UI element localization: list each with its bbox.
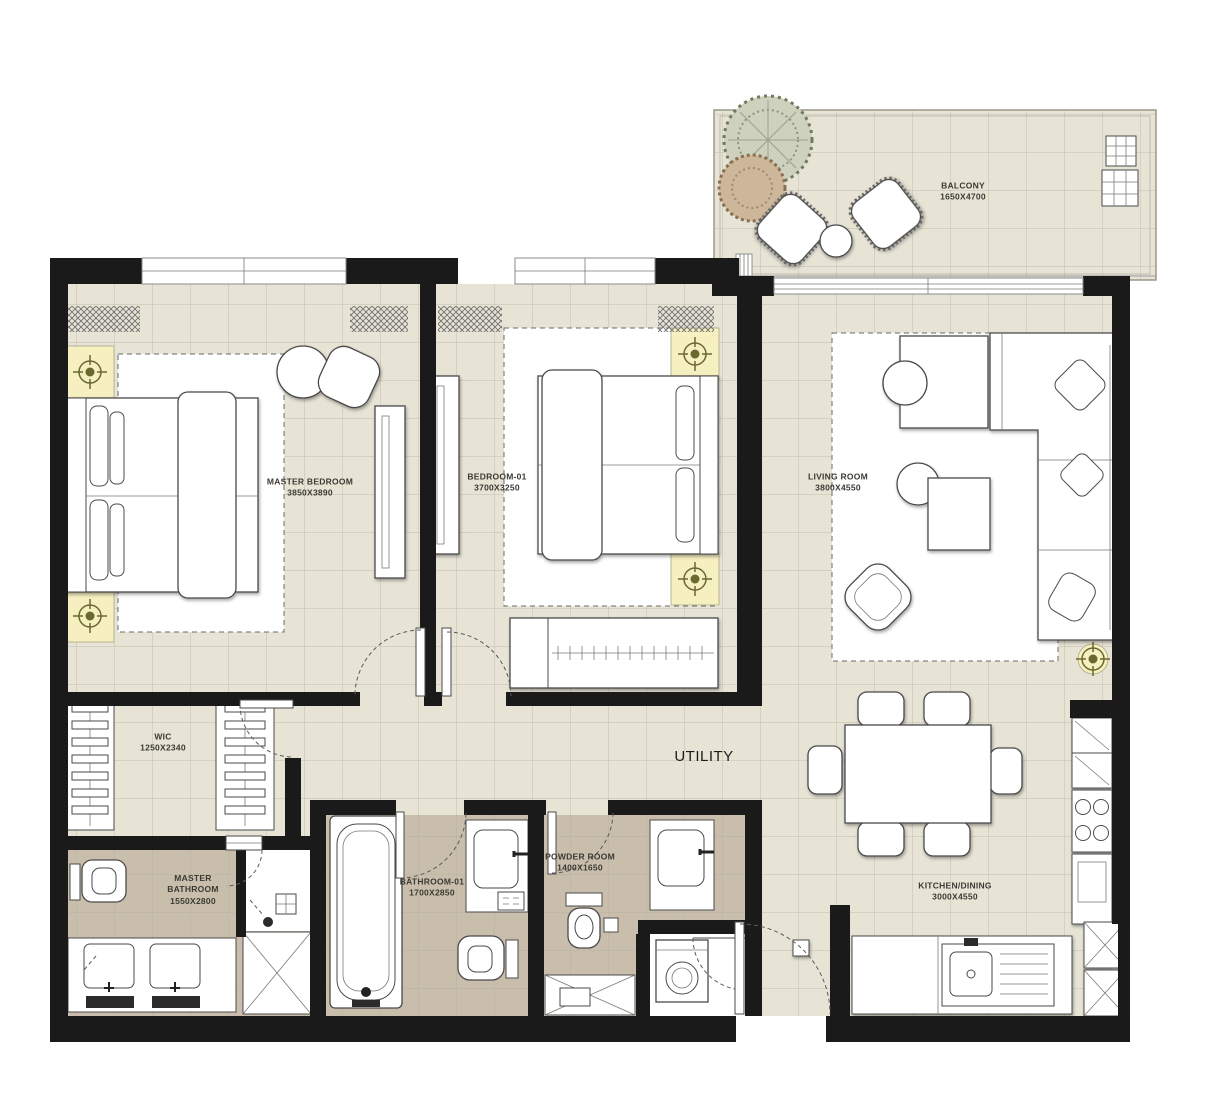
floor-plan-canvas — [0, 0, 1220, 1100]
oven-cabinet — [1072, 854, 1112, 924]
bed-double — [66, 392, 258, 598]
kitchen-counter-bottom — [852, 936, 1072, 1014]
window — [515, 258, 655, 284]
double-vanity — [68, 938, 236, 1012]
planter-icon — [1102, 136, 1138, 206]
wardrobe-hanging — [66, 698, 114, 830]
floor-plan: BALCONY 1650X4700 MASTER BEDROOM 3850X38… — [0, 0, 1220, 1100]
sliding-door-balcony — [774, 278, 1083, 294]
wardrobe-hanging — [216, 698, 274, 830]
kitchen-counter-right — [1072, 718, 1112, 924]
sink — [466, 820, 528, 912]
fridge — [1072, 718, 1112, 788]
wardrobe-low — [510, 618, 718, 688]
toilet — [70, 860, 126, 902]
curtain-hatch — [68, 306, 140, 332]
cooktop — [1072, 790, 1112, 852]
bathroom-niche — [246, 845, 310, 931]
balcony-area — [714, 96, 1156, 280]
bathtub — [330, 816, 402, 1008]
laundry-fixtures — [656, 940, 708, 1002]
balcony-side-table — [820, 225, 852, 257]
sink — [650, 820, 714, 910]
shower — [243, 932, 311, 1014]
bed-double — [538, 370, 718, 560]
wardrobe — [375, 406, 405, 578]
curtain-hatch — [438, 306, 502, 332]
window — [142, 258, 346, 284]
curtain-hatch — [350, 306, 408, 332]
switch-box — [793, 940, 809, 956]
washing-machine — [656, 940, 708, 1002]
curtain-hatch — [658, 306, 714, 332]
